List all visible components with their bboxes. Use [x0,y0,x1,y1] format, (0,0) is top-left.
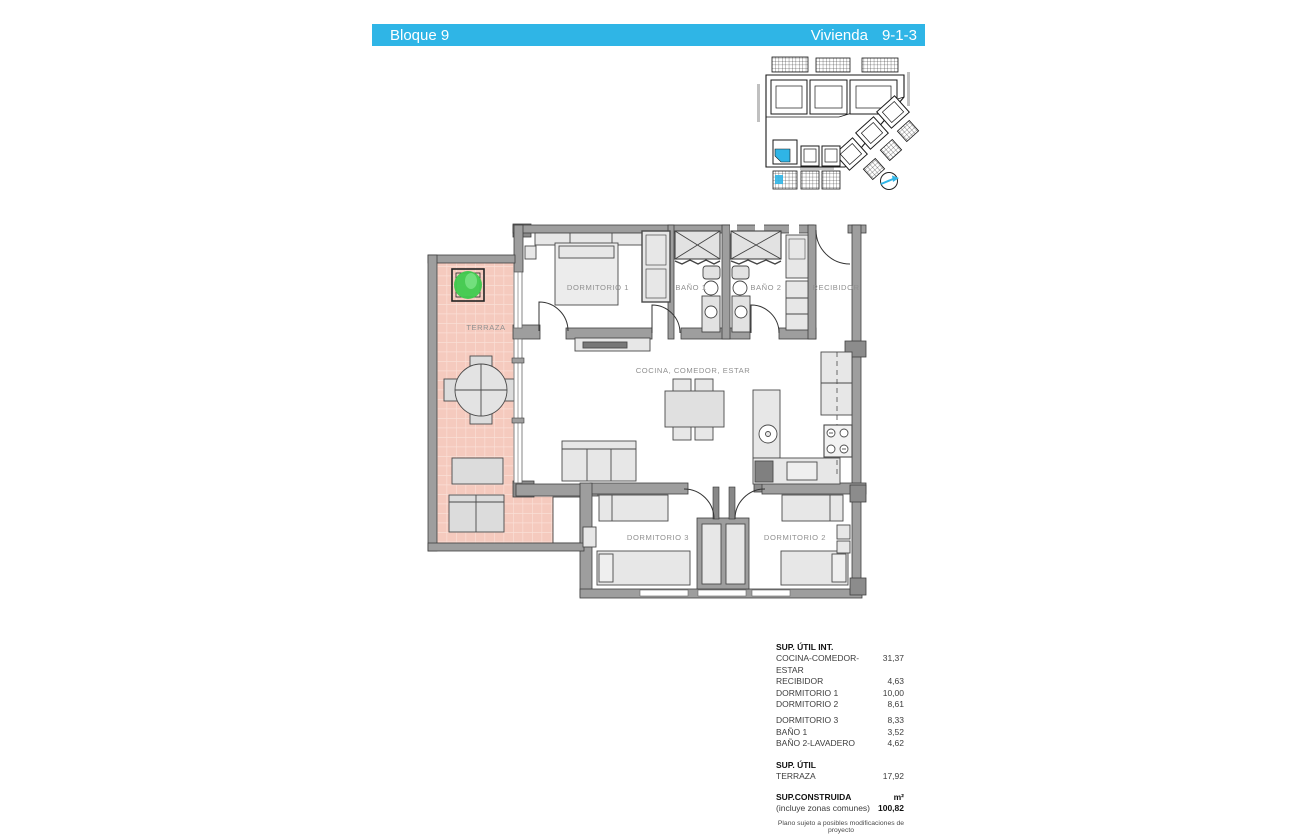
room-label-cocina: COCINA, COMEDOR, ESTAR [636,366,750,375]
hall-closets: RECIBIDOR [786,235,860,330]
site-key-plan [750,52,930,202]
disclaimer-note: Plano sujeto a posibles modificaciones d… [766,820,916,834]
room-label-terraza: TERRAZA [466,323,506,332]
toilet [703,266,720,279]
toilet-bowl [733,281,747,295]
shower-tray [675,231,720,264]
constructed-unit: m² [894,791,904,803]
room-label-dormitorio1: DORMITORIO 1 [567,283,629,292]
title-bar: Bloque 9 Vivienda 9-1-3 [372,24,925,46]
vivienda-number: 9-1-3 [882,27,917,44]
living-kitchen: COCINA, COMEDOR, ESTAR [562,338,852,484]
area-row: DORMITORIO 110,00 [776,688,904,700]
bedroom1: DORMITORIO 1 [525,231,670,305]
toilet [732,266,749,279]
bedroom2: DORMITORIO 2 [764,495,850,585]
block-title: Bloque 9 [372,27,449,44]
sink [735,306,747,318]
vivienda-label: Vivienda [811,27,868,44]
dining-table [665,379,724,440]
street-label-bottom [800,168,834,171]
highlighted-garage [775,175,783,184]
area-row: TERRAZA17,92 [776,771,904,783]
constructed-title: SUP.CONSTRUIDA [776,791,851,803]
shower-tray [731,231,781,264]
terrace-storage-box [553,497,580,543]
section-title-sup-util: SUP. ÚTIL [776,759,904,771]
stove [824,425,852,457]
room-label-bano2: BAÑO 2 [750,283,781,292]
area-row: BAÑO 2-LAVADERO4,62 [776,738,904,750]
room-label-dormitorio3: DORMITORIO 3 [627,533,689,542]
terrace-lounger [452,458,503,484]
terrace-sofa [449,495,504,532]
room-label-bano1: BAÑO 1 [675,283,706,292]
area-row: BAÑO 13,52 [776,727,904,739]
room-label-recibidor: RECIBIDOR [812,283,859,292]
bedroom3: DORMITORIO 3 [583,495,690,585]
floor-plan-drawing: TERRAZA [425,210,875,615]
area-row: DORMITORIO 28,61 [776,699,904,711]
constructed-area-block: SUP.CONSTRUIDA m² (incluye zonas comunes… [776,791,904,834]
area-row: RECIBIDOR4,63 [776,676,904,688]
tv-cabinet [575,338,650,351]
section-title-sup-util-int: SUP. ÚTIL INT. [776,641,904,653]
garage-strips [773,171,840,189]
parking-strips [772,57,898,72]
area-row: COCINA-COMEDOR-ESTAR31,37 [776,653,904,676]
street-label-left [757,84,760,122]
area-row: (incluye zonas comunes) 100,82 [776,803,904,815]
building-blocks-top [771,80,897,114]
sofa [562,441,636,481]
north-arrow-icon [881,173,900,190]
area-row: DORMITORIO 38,33 [776,715,904,727]
bath1: BAÑO 1 [675,231,720,332]
areas-table: SUP. ÚTIL INT. COCINA-COMEDOR-ESTAR31,37… [776,641,904,834]
sink [705,306,717,318]
room-label-dormitorio2: DORMITORIO 2 [764,533,826,542]
street-label-right [907,72,910,106]
floor-plan-sheet: Bloque 9 Vivienda 9-1-3 [0,0,1290,840]
